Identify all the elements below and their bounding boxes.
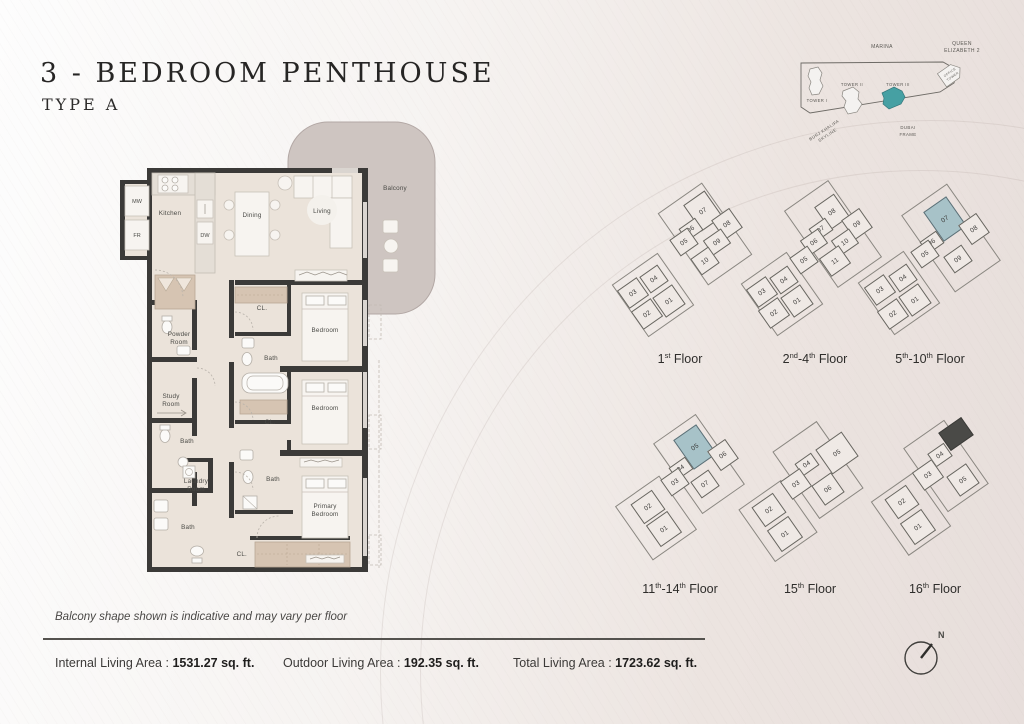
balcony-table — [384, 239, 398, 253]
compass-north-label: N — [938, 630, 945, 640]
site-boundary — [801, 62, 957, 113]
bedroom-2-label: Bedroom — [312, 405, 339, 412]
balcony-label: Balcony — [383, 185, 407, 192]
sofa — [294, 176, 352, 198]
powder-room-label2: Room — [170, 339, 188, 346]
mw-label: MW — [132, 199, 143, 205]
internal-area-label: Internal Living Area : — [55, 656, 172, 670]
floor-plate-6: 040305020116th Floor — [860, 405, 1010, 615]
tower-3-shape — [882, 87, 905, 109]
tower-1-label: TOWER I — [807, 98, 828, 103]
primary-bedroom-label2: Bedroom — [312, 511, 339, 518]
study-room-label1: Study — [162, 393, 180, 400]
floor-plate-label: 5th-10th Floor — [855, 351, 1005, 366]
floor-plate-label: 1st Floor — [605, 351, 755, 366]
toilet — [160, 430, 170, 443]
sink — [177, 346, 190, 355]
bath-3-label: Bath — [266, 476, 280, 483]
floor-plate-1: 070806050910040301021st Floor — [605, 175, 755, 385]
primary-bedroom-label1: Primary — [313, 503, 337, 510]
tower-2-label: TOWER II — [841, 82, 863, 87]
marina-label: MARINA — [871, 44, 893, 50]
bench — [306, 555, 344, 563]
bath-4-label: Bath — [181, 524, 195, 531]
queen-elizabeth-label2: ELIZABETH 2 — [944, 48, 980, 54]
sink — [242, 338, 254, 348]
study-room-label2: Room — [162, 401, 180, 408]
toilet — [191, 546, 204, 556]
balcony-chair — [383, 220, 398, 233]
tower-1-shape — [808, 67, 823, 95]
dining-label: Dining — [242, 212, 261, 219]
toilet — [243, 471, 253, 484]
washer — [183, 466, 195, 478]
dining-table — [235, 192, 269, 256]
queen-elizabeth-label: QUEEN — [952, 41, 972, 47]
page-title: 3 - BEDROOM PENTHOUSE — [40, 58, 495, 89]
side-table — [278, 176, 292, 190]
bedroom-1-label: Bedroom — [312, 327, 339, 334]
brochure-page: 3 - BEDROOM PENTHOUSE TYPE A MARINA QUEE… — [0, 0, 1024, 724]
floor-plate-4: 0506040307020111th-14th Floor — [605, 405, 755, 615]
balcony-note: Balcony shape shown is indicative and ma… — [55, 611, 347, 623]
tower-3-label: TOWER III — [886, 82, 910, 87]
balcony-chair — [383, 259, 398, 272]
dw-label: DW — [200, 233, 210, 239]
compass-needle — [921, 644, 932, 658]
compass: N — [890, 620, 960, 690]
sink — [240, 450, 253, 460]
console — [295, 270, 347, 281]
laundry-room-label1: Laundry — [184, 478, 209, 485]
powder-room-label1: Powder — [168, 331, 191, 338]
internal-area-stat: Internal Living Area : 1531.27 sq. ft. — [55, 656, 254, 670]
vanity-sink — [154, 518, 168, 530]
bath-1-label: Bath — [264, 355, 278, 362]
sink — [178, 457, 188, 467]
closet-2-label: CL. — [265, 419, 275, 426]
floor-plate-3: 0708060509040301025th-10th Floor — [855, 175, 1005, 385]
tower-2-shape — [842, 87, 862, 114]
laundry-room-label2: Room — [187, 486, 205, 493]
kitchen-label: Kitchen — [159, 210, 182, 217]
floor-plate-label: 16th Floor — [860, 581, 1010, 596]
total-area-stat: Total Living Area : 1723.62 sq. ft. — [513, 656, 697, 670]
site-map: MARINA QUEEN ELIZABETH 2 TOWER I TOWER I… — [790, 35, 1010, 150]
dubai-frame-label1: DUBAI — [900, 125, 915, 130]
living-label: Living — [313, 208, 331, 215]
total-area-value: 1723.62 sq. ft. — [615, 656, 697, 670]
fr-label: FR — [133, 233, 140, 239]
floor-plate-label: 11th-14th Floor — [605, 581, 755, 596]
main-floorplan: Balcony — [95, 110, 440, 630]
total-area-label: Total Living Area : — [513, 656, 615, 670]
toilet — [242, 353, 252, 366]
vanity-sink — [154, 500, 168, 512]
outdoor-area-value: 192.35 sq. ft. — [404, 656, 479, 670]
closet-3-label: CL. — [237, 551, 247, 558]
bath-2-label: Bath — [180, 438, 194, 445]
outdoor-area-stat: Outdoor Living Area : 192.35 sq. ft. — [283, 656, 479, 670]
divider-line — [43, 638, 705, 640]
burj-khalifa-label: BURJ KHALIFA SKYLINE — [808, 118, 843, 146]
internal-area-value: 1531.27 sq. ft. — [172, 656, 254, 670]
console — [300, 458, 342, 467]
outdoor-area-label: Outdoor Living Area : — [283, 656, 404, 670]
office-tower-shape: OFFICE TOWER — [937, 61, 964, 87]
exterior-ledges — [369, 305, 381, 570]
closet-1-label: CL. — [257, 305, 267, 312]
dubai-frame-label2: FRAME — [899, 132, 916, 137]
